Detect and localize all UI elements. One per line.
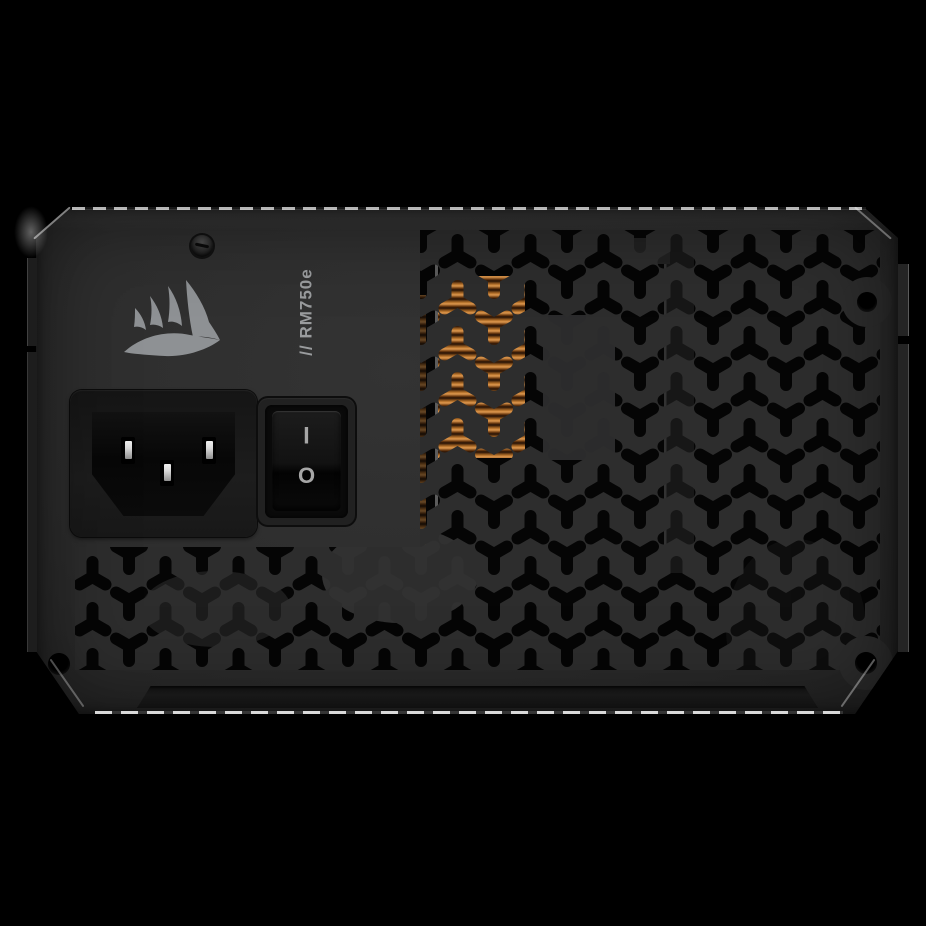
bottom-recessed-strip <box>137 686 818 708</box>
power-switch-rocker: I O <box>272 411 341 511</box>
ac-pin-ground <box>160 460 174 486</box>
left-side-edge <box>27 258 37 346</box>
screw-hole-bottom-right <box>855 652 877 674</box>
corsair-sails-logo-icon <box>122 280 228 360</box>
right-side-edge <box>898 264 909 336</box>
model-label-text: // RM750e <box>297 268 317 355</box>
right-side-edge <box>898 344 909 652</box>
screw-hole-top-right <box>857 292 877 312</box>
left-side-edge <box>27 352 37 652</box>
psu-chassis: // RM750e I O <box>36 209 898 714</box>
product-photo: // RM750e I O <box>0 0 926 926</box>
screw-slot <box>195 243 209 249</box>
power-switch: I O <box>258 398 355 525</box>
power-on-mark: I <box>272 423 341 447</box>
ac-pin-left <box>121 437 135 464</box>
power-off-mark: O <box>272 465 341 487</box>
model-label: // RM750e <box>267 242 347 382</box>
ac-power-inlet <box>70 390 257 537</box>
face-screw <box>191 235 213 257</box>
screw-hole-bottom-left <box>48 653 70 675</box>
ac-pin-right <box>202 437 216 464</box>
